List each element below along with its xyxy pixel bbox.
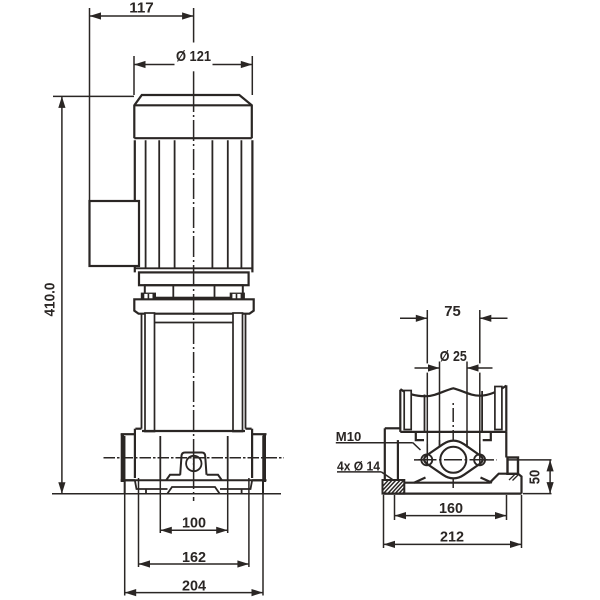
svg-text:75: 75 bbox=[444, 303, 461, 320]
svg-text:410.0: 410.0 bbox=[42, 283, 59, 317]
svg-text:160: 160 bbox=[439, 500, 463, 517]
svg-text:204: 204 bbox=[182, 578, 207, 595]
svg-text:4x Ø 14: 4x Ø 14 bbox=[337, 458, 381, 473]
svg-text:Ø 121: Ø 121 bbox=[176, 48, 211, 65]
svg-text:117: 117 bbox=[129, 0, 154, 16]
svg-text:Ø 25: Ø 25 bbox=[440, 348, 467, 365]
svg-text:162: 162 bbox=[182, 549, 206, 566]
svg-text:M10: M10 bbox=[336, 430, 362, 444]
svg-text:50: 50 bbox=[527, 470, 544, 485]
svg-text:100: 100 bbox=[182, 515, 206, 532]
svg-text:212: 212 bbox=[440, 529, 464, 546]
